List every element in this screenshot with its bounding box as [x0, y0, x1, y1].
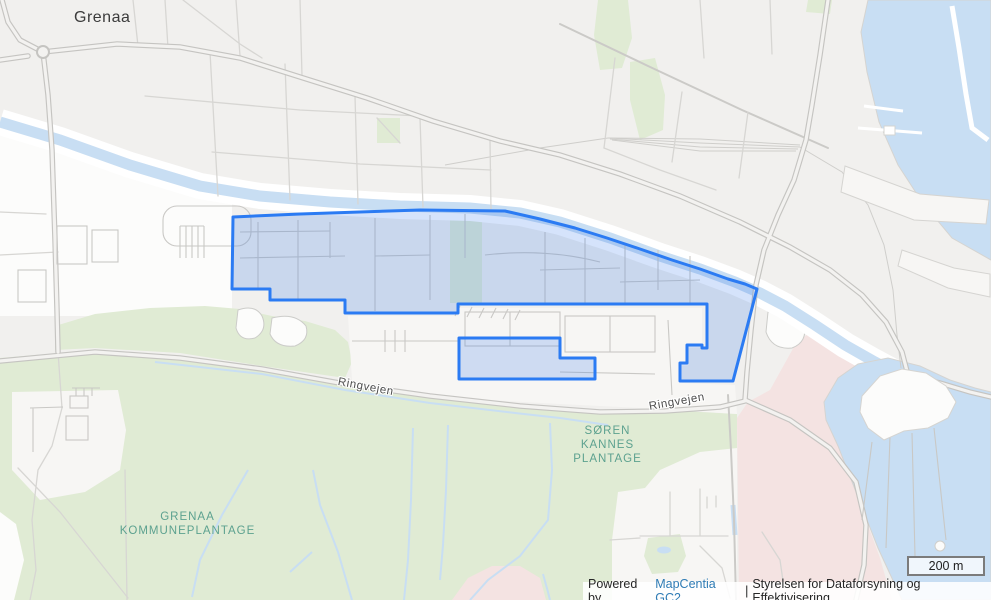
attribution-link-mapcentia[interactable]: MapCentia GC2: [655, 577, 741, 600]
scale-bar: 200 m: [907, 556, 985, 576]
map-viewport[interactable]: Grenaa Ringvejen Ringvejen SØREN KANNES …: [0, 0, 991, 600]
attribution-separator: |: [745, 584, 748, 598]
roundabout: [37, 46, 49, 58]
attribution-bar: Powered by MapCentia GC2 | Styrelsen for…: [583, 582, 991, 600]
attribution-powered-by: Powered by: [588, 577, 651, 600]
scale-bar-label: 200 m: [929, 559, 964, 573]
attribution-org: Styrelsen for Dataforsyning og Effektivi…: [752, 577, 991, 600]
map-canvas[interactable]: [0, 0, 991, 600]
